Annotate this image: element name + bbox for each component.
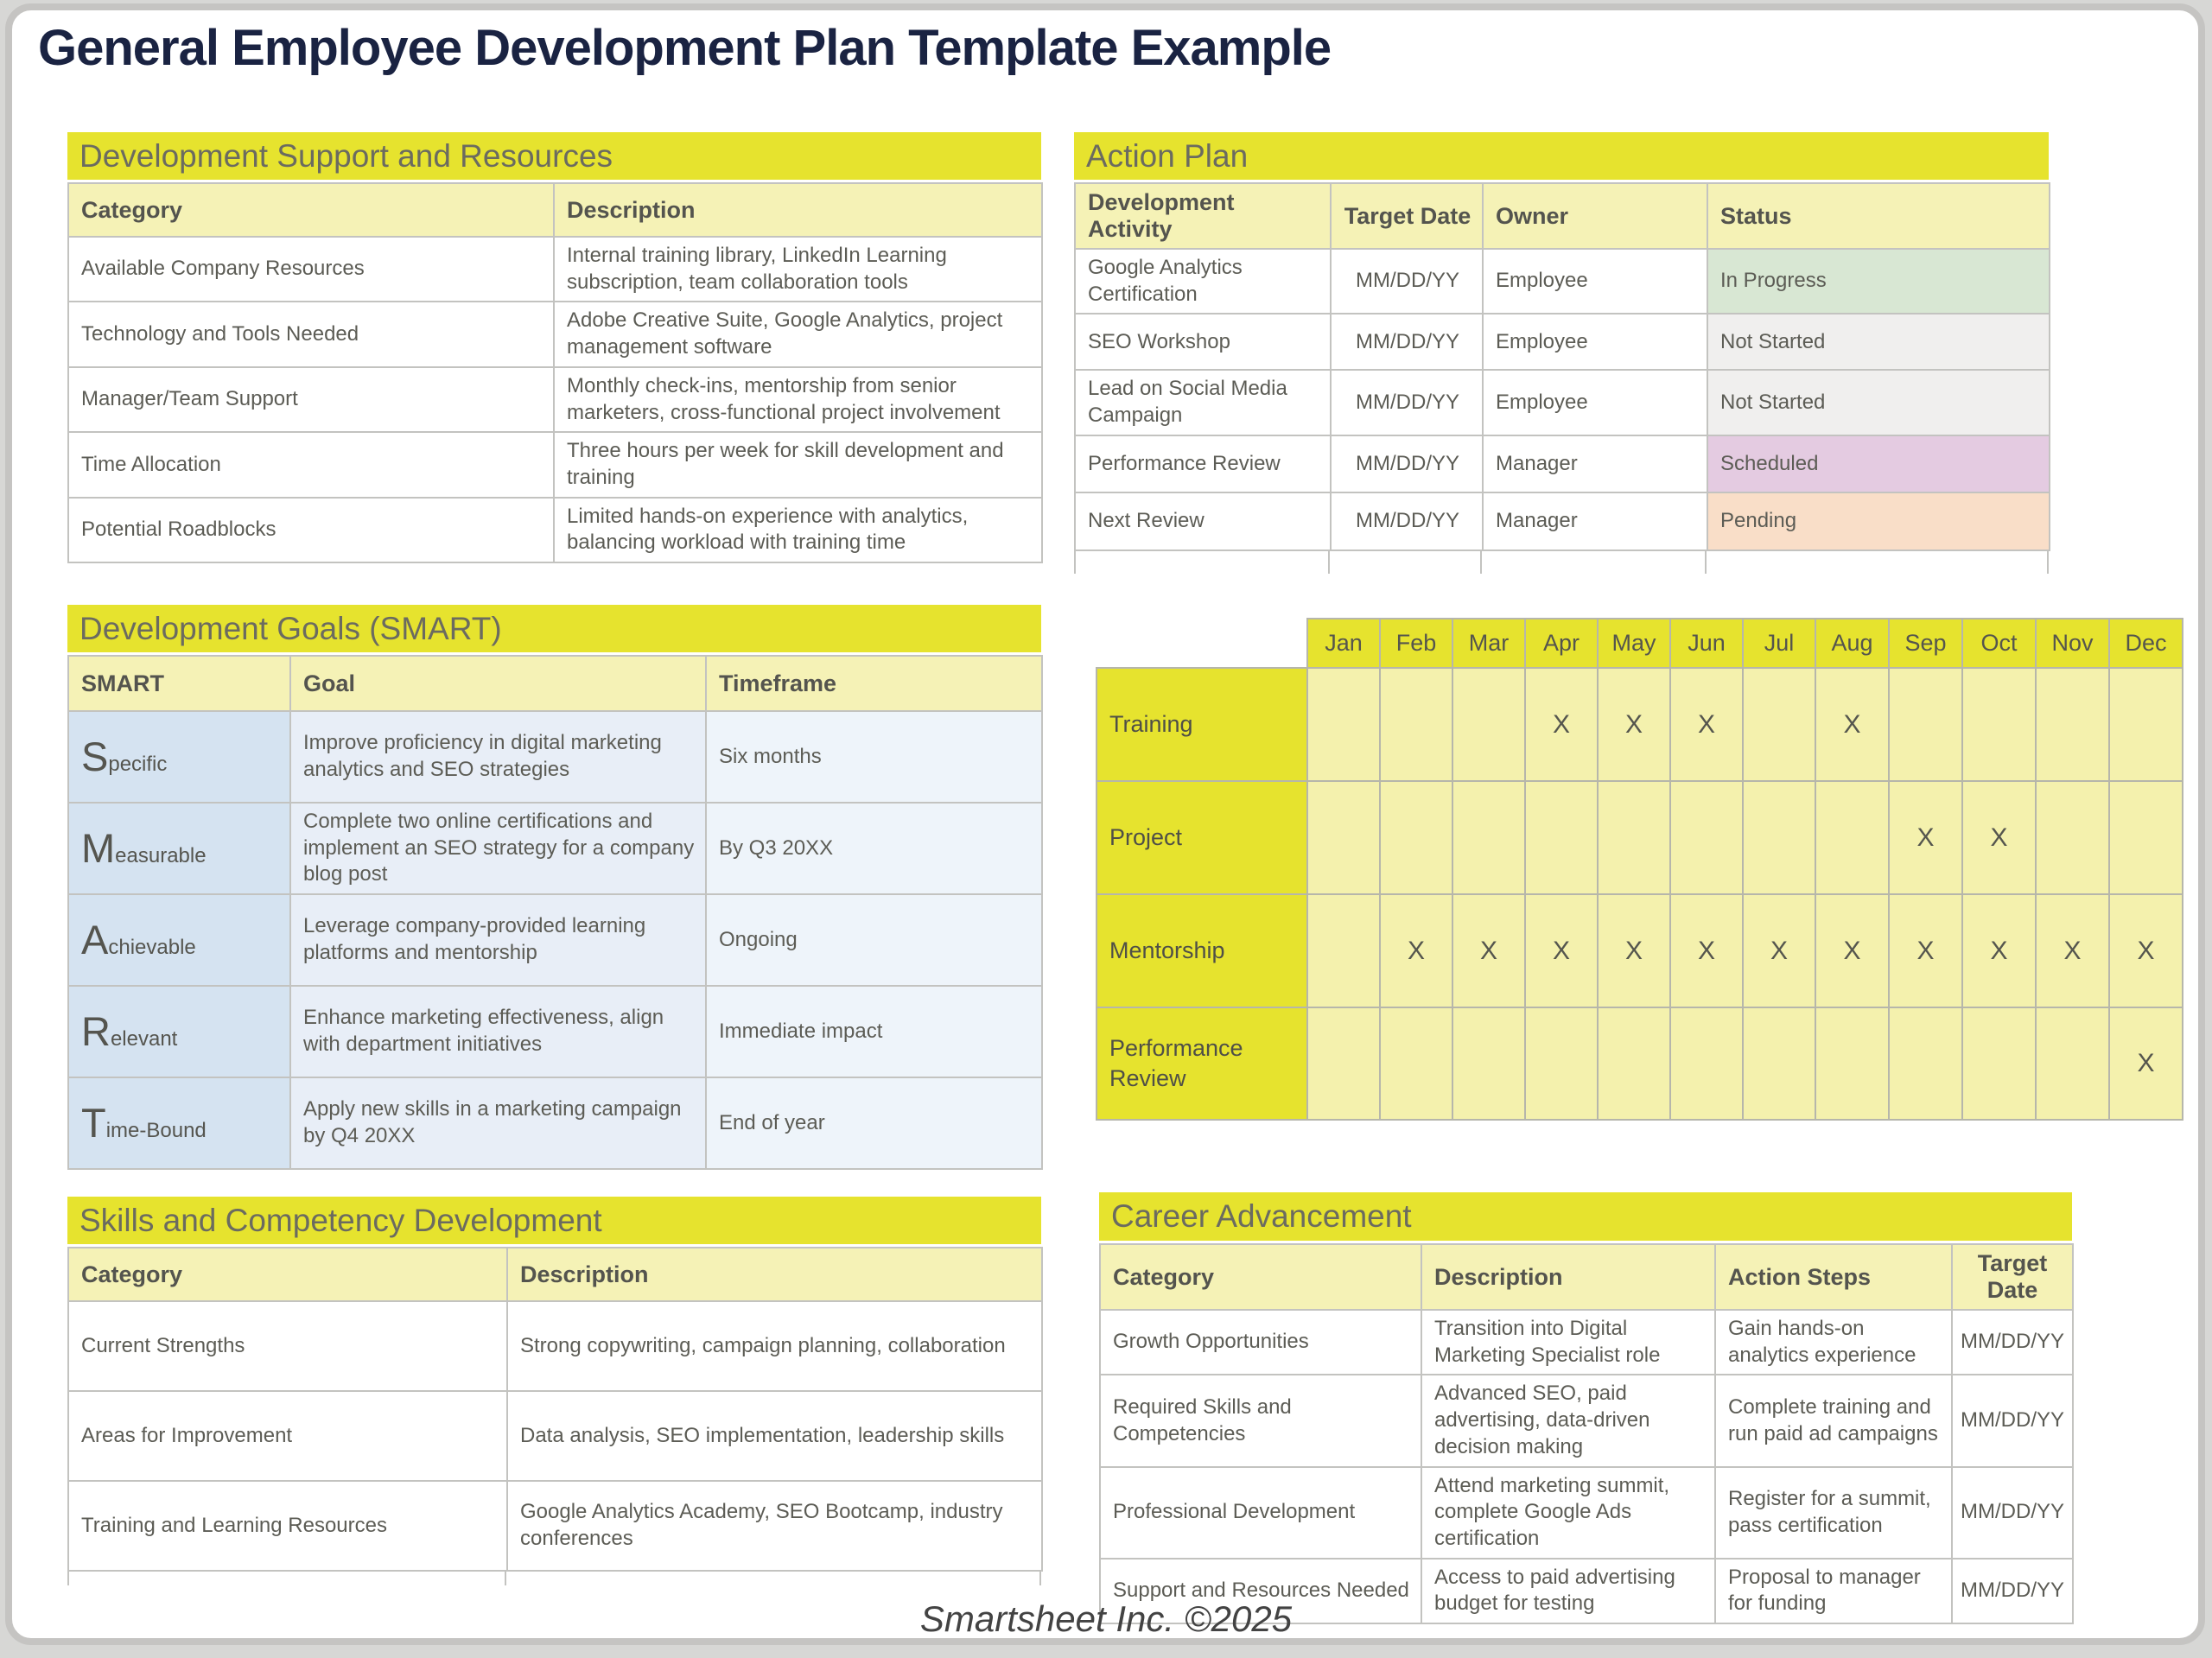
month-header: Apr xyxy=(1525,619,1598,668)
skills-table: Category Description Current Strengths S… xyxy=(67,1247,1043,1572)
month-header: May xyxy=(1598,619,1670,668)
smart-lead-letter: A xyxy=(81,917,108,962)
grid-cell xyxy=(1380,781,1452,894)
action-steps-cell: Complete training and run paid ad campai… xyxy=(1715,1375,1952,1466)
grid-row-label: Performance Review xyxy=(1096,1007,1307,1120)
target-date-cell: MM/DD/YY xyxy=(1331,492,1483,550)
category-cell: Technology and Tools Needed xyxy=(68,302,554,366)
description-cell: Advanced SEO, paid advertising, data-dri… xyxy=(1421,1375,1715,1466)
category-cell: Time Allocation xyxy=(68,432,554,497)
page-title: General Employee Development Plan Templa… xyxy=(38,19,1331,77)
table-row: SEO Workshop MM/DD/YY Employee Not Start… xyxy=(1075,314,2050,370)
grid-cell xyxy=(1962,668,2036,781)
smart-label-rest: pecific xyxy=(108,753,167,776)
grid-row-training: Training X X X X xyxy=(1096,668,2183,781)
grid-cell xyxy=(1598,781,1670,894)
column-header-category: Category xyxy=(68,1248,507,1301)
table-header-row: SMART Goal Timeframe xyxy=(68,656,1042,711)
table-header-row: Development Activity Target Date Owner S… xyxy=(1075,183,2050,249)
skills-section-title: Skills and Competency Development xyxy=(67,1197,1041,1244)
career-section-title: Career Advancement xyxy=(1099,1192,2072,1241)
grid-cell xyxy=(1815,1007,1889,1120)
timeframe-cell: End of year xyxy=(706,1077,1042,1169)
cutoff-row xyxy=(67,1572,1041,1585)
grid-cell: X xyxy=(1452,894,1525,1007)
month-header: Dec xyxy=(2109,619,2183,668)
smart-label-rest: easurable xyxy=(115,844,206,867)
table-row: Required Skills and Competencies Advance… xyxy=(1100,1375,2073,1466)
table-row: Training and Learning Resources Google A… xyxy=(68,1481,1042,1571)
grid-cell xyxy=(1380,1007,1452,1120)
grid-cell: X xyxy=(1889,894,1962,1007)
goal-cell: Improve proficiency in digital marketing… xyxy=(290,711,706,803)
month-header: Feb xyxy=(1380,619,1452,668)
grid-cell xyxy=(1452,668,1525,781)
month-header: Aug xyxy=(1815,619,1889,668)
activity-cell: Lead on Social Media Campaign xyxy=(1075,370,1331,435)
smart-label-cell: Achievable xyxy=(68,894,290,986)
column-header-development-activity: Development Activity xyxy=(1075,183,1331,249)
table-row: Next Review MM/DD/YY Manager Pending xyxy=(1075,492,2050,550)
column-header-description: Description xyxy=(554,183,1042,237)
grid-cell xyxy=(1452,781,1525,894)
status-cell: In Progress xyxy=(1707,249,2050,314)
column-header-action-steps: Action Steps xyxy=(1715,1244,1952,1310)
description-cell: Transition into Digital Marketing Specia… xyxy=(1421,1310,1715,1375)
grid-cell: X xyxy=(1962,894,2036,1007)
table-row: Relevant Enhance marketing effectiveness… xyxy=(68,986,1042,1077)
grid-cell: X xyxy=(1670,894,1743,1007)
grid-corner-cell xyxy=(1096,619,1307,668)
description-cell: Data analysis, SEO implementation, leade… xyxy=(507,1391,1042,1481)
table-row: Achievable Leverage company-provided lea… xyxy=(68,894,1042,986)
month-header: Jun xyxy=(1670,619,1743,668)
column-header-goal: Goal xyxy=(290,656,706,711)
month-header: Jan xyxy=(1307,619,1380,668)
column-header-target-date: Target Date xyxy=(1331,183,1483,249)
grid-cell xyxy=(2109,668,2183,781)
table-header-row: Category Description Action Steps Target… xyxy=(1100,1244,2073,1310)
action-plan-section-title: Action Plan xyxy=(1074,132,2049,180)
status-cell: Scheduled xyxy=(1707,435,2050,492)
grid-cell xyxy=(1380,668,1452,781)
table-row: Growth Opportunities Transition into Dig… xyxy=(1100,1310,2073,1375)
table-row: Time-Bound Apply new skills in a marketi… xyxy=(68,1077,1042,1169)
category-cell: Potential Roadblocks xyxy=(68,498,554,562)
target-date-cell: MM/DD/YY xyxy=(1331,249,1483,314)
description-cell: Google Analytics Academy, SEO Bootcamp, … xyxy=(507,1481,1042,1571)
goal-cell: Leverage company-provided learning platf… xyxy=(290,894,706,986)
grid-cell xyxy=(1598,1007,1670,1120)
smart-goals-table: SMART Goal Timeframe Specific Improve pr… xyxy=(67,655,1043,1170)
action-plan-table: Development Activity Target Date Owner S… xyxy=(1074,182,2050,551)
smart-goals-section: Development Goals (SMART) SMART Goal Tim… xyxy=(67,605,1041,1170)
table-row: Measurable Complete two online certifica… xyxy=(68,803,1042,894)
month-header: Oct xyxy=(1962,619,2036,668)
grid-month-header-row: Jan Feb Mar Apr May Jun Jul Aug Sep Oct … xyxy=(1096,619,2183,668)
column-header-timeframe: Timeframe xyxy=(706,656,1042,711)
grid-cell xyxy=(2109,781,2183,894)
table-row: Professional Development Attend marketin… xyxy=(1100,1467,2073,1559)
grid-cell xyxy=(1307,668,1380,781)
category-cell: Required Skills and Competencies xyxy=(1100,1375,1421,1466)
grid-row-label: Training xyxy=(1096,668,1307,781)
table-row: Potential Roadblocks Limited hands-on ex… xyxy=(68,498,1042,562)
grid-cell xyxy=(1743,781,1815,894)
timeframe-cell: Immediate impact xyxy=(706,986,1042,1077)
grid-cell xyxy=(2036,668,2109,781)
column-header-category: Category xyxy=(1100,1244,1421,1310)
grid-cell: X xyxy=(1525,668,1598,781)
table-header-row: Category Description xyxy=(68,183,1042,237)
column-header-owner: Owner xyxy=(1483,183,1707,249)
career-table: Category Description Action Steps Target… xyxy=(1099,1243,2074,1624)
grid-cell xyxy=(1743,668,1815,781)
grid-cell: X xyxy=(2109,894,2183,1007)
grid-cell: X xyxy=(1380,894,1452,1007)
smart-lead-letter: R xyxy=(81,1008,111,1054)
owner-cell: Manager xyxy=(1483,492,1707,550)
activity-cell: Performance Review xyxy=(1075,435,1331,492)
activity-cell: Google Analytics Certification xyxy=(1075,249,1331,314)
goal-cell: Apply new skills in a marketing campaign… xyxy=(290,1077,706,1169)
owner-cell: Employee xyxy=(1483,370,1707,435)
grid-cell: X xyxy=(1670,668,1743,781)
table-row: Areas for Improvement Data analysis, SEO… xyxy=(68,1391,1042,1481)
grid-cell xyxy=(2036,781,2109,894)
description-cell: Limited hands-on experience with analyti… xyxy=(554,498,1042,562)
action-plan-section: Action Plan Development Activity Target … xyxy=(1074,132,2049,574)
category-cell: Areas for Improvement xyxy=(68,1391,507,1481)
table-row: Performance Review MM/DD/YY Manager Sche… xyxy=(1075,435,2050,492)
grid-cell xyxy=(1307,1007,1380,1120)
grid-cell: X xyxy=(1962,781,2036,894)
smart-label-rest: elevant xyxy=(111,1027,177,1051)
owner-cell: Employee xyxy=(1483,314,1707,370)
support-resources-table: Category Description Available Company R… xyxy=(67,182,1043,563)
description-cell: Adobe Creative Suite, Google Analytics, … xyxy=(554,302,1042,366)
grid-cell xyxy=(1962,1007,2036,1120)
table-header-row: Category Description xyxy=(68,1248,1042,1301)
category-cell: Manager/Team Support xyxy=(68,367,554,432)
skills-section: Skills and Competency Development Catego… xyxy=(67,1197,1041,1585)
activity-cell: Next Review xyxy=(1075,492,1331,550)
description-cell: Monthly check-ins, mentorship from senio… xyxy=(554,367,1042,432)
activity-cell: SEO Workshop xyxy=(1075,314,1331,370)
action-steps-cell: Gain hands-on analytics experience xyxy=(1715,1310,1952,1375)
grid-cell xyxy=(1889,668,1962,781)
category-cell: Professional Development xyxy=(1100,1467,1421,1559)
grid-cell: X xyxy=(1743,894,1815,1007)
smart-label-cell: Specific xyxy=(68,711,290,803)
grid-cell xyxy=(1743,1007,1815,1120)
grid-cell xyxy=(1307,894,1380,1007)
owner-cell: Employee xyxy=(1483,249,1707,314)
table-row: Manager/Team Support Monthly check-ins, … xyxy=(68,367,1042,432)
smart-goals-section-title: Development Goals (SMART) xyxy=(67,605,1041,652)
grid-row-project: Project X X xyxy=(1096,781,2183,894)
support-resources-section: Development Support and Resources Catego… xyxy=(67,132,1041,563)
smart-label-rest: ime-Bound xyxy=(106,1119,207,1142)
smart-label-cell: Time-Bound xyxy=(68,1077,290,1169)
column-header-target-date: Target Date xyxy=(1952,1244,2073,1310)
grid-cell: X xyxy=(1525,894,1598,1007)
schedule-grid: Jan Feb Mar Apr May Jun Jul Aug Sep Oct … xyxy=(1096,618,2183,1121)
grid-row-performance-review: Performance Review X xyxy=(1096,1007,2183,1120)
column-header-description: Description xyxy=(1421,1244,1715,1310)
month-header: Jul xyxy=(1743,619,1815,668)
grid-cell xyxy=(1815,781,1889,894)
target-date-cell: MM/DD/YY xyxy=(1952,1375,2073,1466)
description-cell: Attend marketing summit, complete Google… xyxy=(1421,1467,1715,1559)
career-section: Career Advancement Category Description … xyxy=(1099,1192,2072,1624)
table-row: Available Company Resources Internal tra… xyxy=(68,237,1042,302)
target-date-cell: MM/DD/YY xyxy=(1331,435,1483,492)
grid-row-mentorship: Mentorship X X X X X X X X X X X xyxy=(1096,894,2183,1007)
target-date-cell: MM/DD/YY xyxy=(1952,1310,2073,1375)
grid-row-label: Mentorship xyxy=(1096,894,1307,1007)
support-resources-section-title: Development Support and Resources xyxy=(67,132,1041,180)
grid-cell: X xyxy=(2109,1007,2183,1120)
category-cell: Training and Learning Resources xyxy=(68,1481,507,1571)
column-header-description: Description xyxy=(507,1248,1042,1301)
column-header-category: Category xyxy=(68,183,554,237)
month-header: Sep xyxy=(1889,619,1962,668)
grid-cell: X xyxy=(1815,668,1889,781)
timeframe-cell: Six months xyxy=(706,711,1042,803)
smart-label-cell: Relevant xyxy=(68,986,290,1077)
grid-cell xyxy=(2036,1007,2109,1120)
category-cell: Current Strengths xyxy=(68,1301,507,1391)
smart-lead-letter: S xyxy=(81,734,108,779)
target-date-cell: MM/DD/YY xyxy=(1331,370,1483,435)
grid-cell xyxy=(1452,1007,1525,1120)
grid-cell: X xyxy=(1815,894,1889,1007)
grid-cell: X xyxy=(1598,668,1670,781)
target-date-cell: MM/DD/YY xyxy=(1952,1467,2073,1559)
action-steps-cell: Register for a summit, pass certificatio… xyxy=(1715,1467,1952,1559)
description-cell: Internal training library, LinkedIn Lear… xyxy=(554,237,1042,302)
smart-label-rest: chievable xyxy=(108,936,195,959)
category-cell: Growth Opportunities xyxy=(1100,1310,1421,1375)
timeframe-cell: Ongoing xyxy=(706,894,1042,986)
month-header: Mar xyxy=(1452,619,1525,668)
owner-cell: Manager xyxy=(1483,435,1707,492)
table-row: Specific Improve proficiency in digital … xyxy=(68,711,1042,803)
grid-cell: X xyxy=(2036,894,2109,1007)
goal-cell: Enhance marketing effectiveness, align w… xyxy=(290,986,706,1077)
status-cell: Pending xyxy=(1707,492,2050,550)
description-cell: Strong copywriting, campaign planning, c… xyxy=(507,1301,1042,1391)
target-date-cell: MM/DD/YY xyxy=(1331,314,1483,370)
copyright-footer: Smartsheet Inc. ©2025 xyxy=(0,1598,2212,1640)
smart-lead-letter: T xyxy=(81,1100,106,1146)
grid-cell xyxy=(1525,781,1598,894)
description-cell: Three hours per week for skill developme… xyxy=(554,432,1042,497)
schedule-grid-section: Jan Feb Mar Apr May Jun Jul Aug Sep Oct … xyxy=(1096,618,2182,1121)
grid-cell xyxy=(1670,781,1743,894)
goal-cell: Complete two online certifications and i… xyxy=(290,803,706,894)
status-cell: Not Started xyxy=(1707,370,2050,435)
category-cell: Available Company Resources xyxy=(68,237,554,302)
table-row: Time Allocation Three hours per week for… xyxy=(68,432,1042,497)
cutoff-row xyxy=(1074,551,2049,574)
table-row: Lead on Social Media Campaign MM/DD/YY E… xyxy=(1075,370,2050,435)
month-header: Nov xyxy=(2036,619,2109,668)
grid-cell xyxy=(1525,1007,1598,1120)
table-row: Google Analytics Certification MM/DD/YY … xyxy=(1075,249,2050,314)
grid-cell xyxy=(1889,1007,1962,1120)
smart-label-cell: Measurable xyxy=(68,803,290,894)
grid-cell xyxy=(1307,781,1380,894)
smart-lead-letter: M xyxy=(81,825,115,871)
column-header-status: Status xyxy=(1707,183,2050,249)
grid-cell xyxy=(1670,1007,1743,1120)
grid-cell: X xyxy=(1889,781,1962,894)
grid-row-label: Project xyxy=(1096,781,1307,894)
status-cell: Not Started xyxy=(1707,314,2050,370)
column-header-smart: SMART xyxy=(68,656,290,711)
table-row: Technology and Tools Needed Adobe Creati… xyxy=(68,302,1042,366)
timeframe-cell: By Q3 20XX xyxy=(706,803,1042,894)
table-row: Current Strengths Strong copywriting, ca… xyxy=(68,1301,1042,1391)
grid-cell: X xyxy=(1598,894,1670,1007)
